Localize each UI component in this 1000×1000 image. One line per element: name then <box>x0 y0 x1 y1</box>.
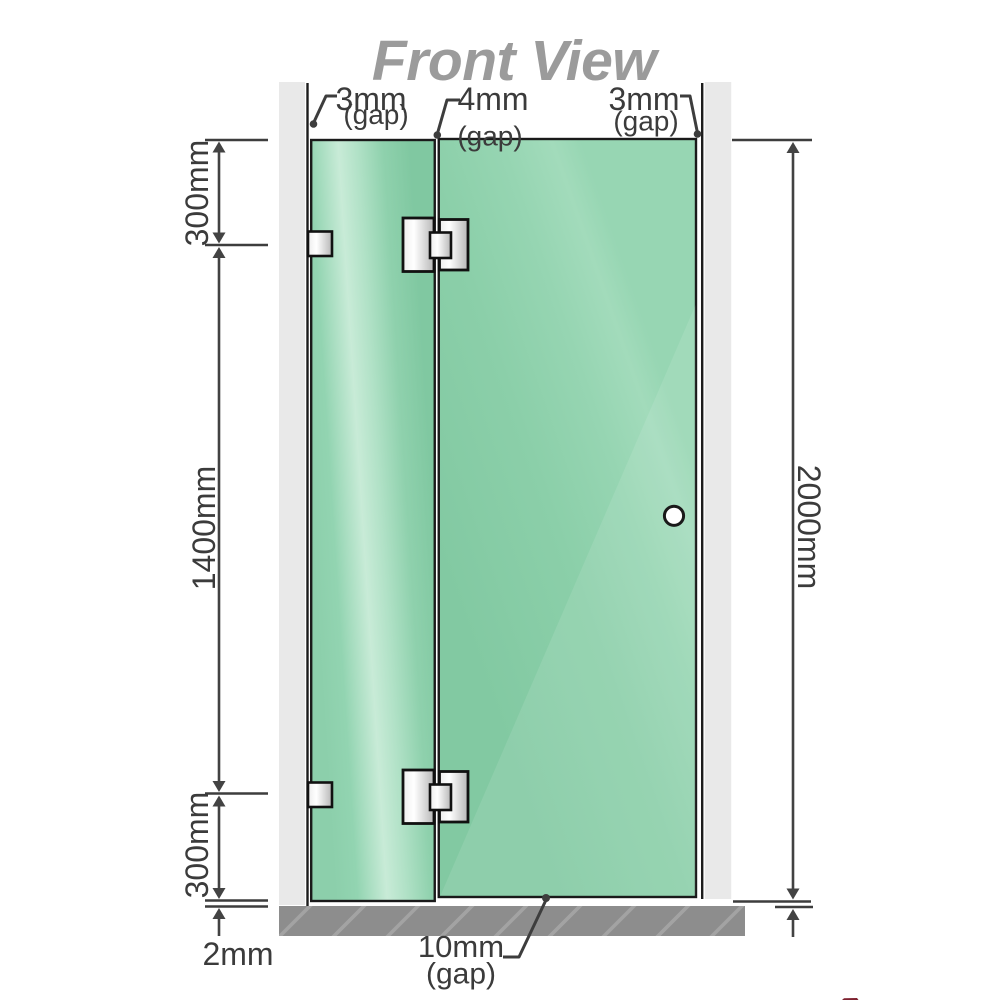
svg-text:2000mm: 2000mm <box>791 465 827 590</box>
svg-text:1400mm: 1400mm <box>186 466 222 591</box>
svg-text:2mm: 2mm <box>202 936 273 972</box>
svg-text:(gap): (gap) <box>457 121 522 152</box>
svg-text:(gap): (gap) <box>343 99 408 130</box>
svg-text:300mm: 300mm <box>179 140 215 247</box>
svg-text:300mm: 300mm <box>179 792 215 899</box>
svg-text:(gap): (gap) <box>613 106 678 137</box>
svg-text:4mm: 4mm <box>457 81 528 117</box>
svg-text:(gap): (gap) <box>426 958 496 991</box>
